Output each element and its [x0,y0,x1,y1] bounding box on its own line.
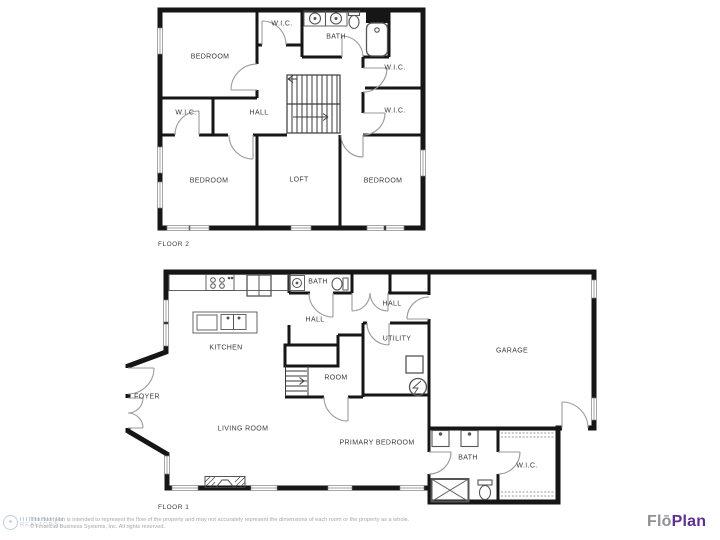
room-label-primary-bedroom: PRIMARY BEDROOM [339,440,414,447]
room-label-bedroom: BEDROOM [364,178,403,185]
room-label-wic: W.I.C. [384,65,405,72]
utility-fixtures [406,356,427,396]
bathtub-icon [367,23,388,56]
floplan-logo: FlōPlan [647,513,706,531]
kitchen-fixtures [169,275,289,334]
floor2-label: FLOOR 2 [158,241,189,248]
room-label-living-room: LIVING ROOM [218,426,269,433]
room-label-room: ROOM [324,375,347,382]
floor1-label: FLOOR 1 [158,504,189,511]
sink-icon [290,276,305,291]
floplan-logo-plan: Plan [672,513,707,530]
room-label-garage: GARAGE [496,348,528,355]
room-label-bedroom: BEDROOM [191,54,230,61]
floplan-logo-flo: Flō [647,513,672,530]
room-label-hall: HALL [383,301,402,308]
room-label-wic: W.I.C. [516,463,537,470]
room-label-bath: BATH [458,455,478,462]
room-label-hall: HALL [306,317,325,324]
toilet-icon [332,278,348,290]
disclaimer-text: This floor plan is intended to represent… [30,517,409,531]
water-heater-icon [410,379,427,396]
toilet-icon [478,480,492,500]
double-sink-icon [304,11,347,26]
room-label-utility: UTILITY [383,336,412,343]
refrigerator-icon [247,275,271,296]
floor2-chase-block [366,10,388,23]
room-label-wic: W.I.C. [384,108,405,115]
floor2-plan [158,10,426,231]
floor1-stair-box [285,345,338,366]
floor2-doors [175,21,387,159]
room-label-wic: W.I.C. [175,110,196,117]
room-label-hall: HALL [250,110,269,117]
disclaimer-line-2: © Financial Business Systems, Inc. All r… [30,524,409,531]
globe-icon: ✦ [3,515,18,530]
room-label-bedroom: BEDROOM [190,178,229,185]
floor2-stairs [287,75,340,133]
floor1-stairs [286,366,309,396]
kitchen-island [193,312,257,333]
room-label-wic: W.I.C. [271,21,292,28]
sink-icon [432,431,449,447]
stove-icon [206,275,234,291]
stairs-arrow-icon [289,378,304,385]
room-label-loft: LOFT [289,177,308,184]
sink-icon [461,431,478,447]
hvac-icon [406,356,423,373]
toilet-icon [349,11,360,29]
room-label-bath: BATH [308,279,328,286]
room-label-bath: BATH [326,34,346,41]
room-label-foyer: FOYER [134,394,160,401]
floor-plan-drawing [0,0,720,540]
shower-icon [432,479,469,502]
floor-plan-page: BEDROOM W.I.C. BATH W.I.C. W.I.C. W.I.C.… [0,0,720,540]
room-label-kitchen: KITCHEN [209,345,242,352]
